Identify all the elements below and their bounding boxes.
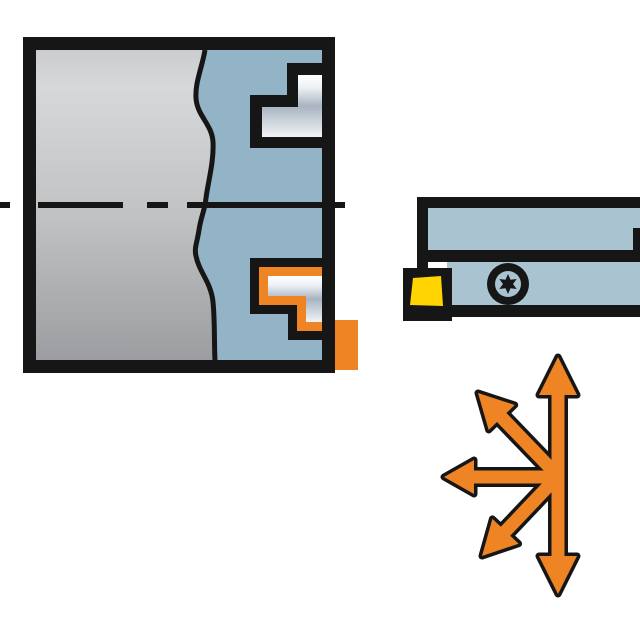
feed-direction-arrows-icon xyxy=(428,345,640,600)
workpiece-graphic xyxy=(36,50,322,360)
workpiece-cross-section xyxy=(23,37,335,373)
torx-screw-icon xyxy=(487,263,529,305)
holder-lower-band xyxy=(447,262,640,305)
holder-upper-band xyxy=(428,208,640,250)
cutting-insert xyxy=(410,276,443,306)
tool-holder xyxy=(400,193,640,324)
arrows-fill xyxy=(444,357,577,594)
holder-left-edge xyxy=(417,197,428,276)
holder-top-edge xyxy=(417,197,640,208)
technical-illustration xyxy=(0,0,640,640)
corner-highlight-tab xyxy=(333,320,358,370)
holder-bottom-edge xyxy=(440,305,640,317)
centerline-segment xyxy=(333,202,345,208)
centerline-segment xyxy=(0,202,10,208)
holder-divider xyxy=(417,250,640,262)
